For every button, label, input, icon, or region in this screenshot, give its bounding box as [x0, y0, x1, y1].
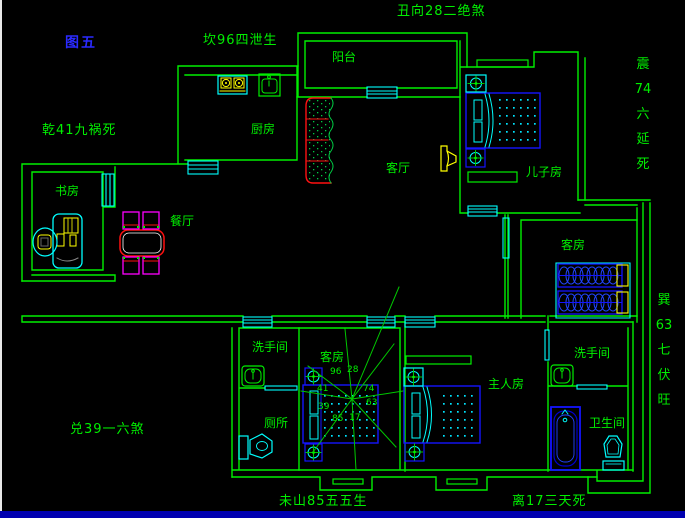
bathtub-icon — [551, 407, 580, 470]
compass-number-e: 74 — [363, 384, 374, 394]
window-study — [102, 174, 114, 206]
nightstand-target-icon — [466, 75, 486, 167]
bottom-scrollbar[interactable] — [0, 511, 685, 518]
window-hall-2 — [367, 317, 395, 327]
compass-number-se: 63 — [366, 398, 377, 408]
room-label-toilet: 厕所 — [264, 416, 288, 430]
threshold-right-washroom — [577, 385, 607, 389]
door-master — [545, 330, 549, 360]
annotation-li-south: 离17三天死 — [512, 495, 587, 509]
washbasin-icon — [551, 365, 573, 386]
room-label-guest-room-upper: 客房 — [561, 238, 585, 252]
window-sons-room — [468, 206, 497, 216]
room-label-washroom-right: 洗手间 — [574, 346, 610, 360]
compass-number-ne: 28 — [347, 365, 358, 375]
compass-number-s: 17 — [349, 413, 360, 423]
room-label-dining-room: 餐厅 — [170, 214, 194, 228]
toilet-icon — [239, 434, 272, 459]
room-label-guest-room-lower: 客房 — [320, 350, 344, 364]
room-label-washroom-left: 洗手间 — [252, 340, 288, 354]
toilet-icon — [603, 436, 624, 470]
sofa-icon — [306, 98, 333, 183]
room-label-master-room: 主人房 — [488, 377, 524, 391]
compass-number-n: 96 — [330, 367, 341, 377]
guest-beds-icon — [556, 263, 630, 318]
annotation-wei-southwest: 未山85五五生 — [279, 495, 368, 509]
annotation-zhen-east: 震 74 六 延 死 — [633, 52, 653, 177]
annotation-kan-north: 坎96四泄生 — [203, 34, 278, 48]
compass-number-w: 39 — [318, 402, 329, 412]
master-shelf-icon — [406, 356, 471, 364]
dining-table-icon — [120, 230, 164, 256]
room-label-living-room: 客厅 — [386, 161, 410, 175]
threshold-left-washroom — [265, 386, 297, 390]
annotation-xun-southeast: 巽 63 七 伏 旺 — [654, 288, 674, 413]
cad-floorplan-window: 图五 坎96四泄生 丑向28二绝煞 乾41九祸死 震 74 六 延 死 巽 63… — [0, 0, 685, 518]
sink-icon — [259, 74, 280, 96]
stove-icon — [218, 76, 247, 94]
annotation-chou-northeast: 丑向28二绝煞 — [397, 5, 486, 19]
tv-icon — [441, 146, 456, 171]
window-border-left — [0, 0, 2, 518]
room-label-kitchen: 厨房 — [251, 122, 275, 136]
entry-steps — [333, 479, 477, 484]
dining-chairs-icon — [123, 212, 159, 274]
compass-number-sw: 85 — [332, 414, 343, 424]
washbasin-icon — [242, 366, 264, 386]
window-balcony — [367, 87, 397, 98]
figure-label: 图五 — [65, 36, 97, 50]
room-label-balcony: 阳台 — [332, 50, 356, 64]
room-label-study: 书房 — [55, 184, 79, 198]
floorplan-canvas — [0, 0, 685, 518]
sons-bed-icon — [466, 93, 540, 148]
compass-number-nw: 41 — [317, 384, 328, 394]
window-hall-1 — [243, 317, 272, 327]
annotation-qian-northwest: 乾41九祸死 — [42, 124, 117, 138]
window-kitchen — [188, 161, 218, 174]
master-bed-icon — [404, 386, 480, 443]
room-label-bathroom: 卫生间 — [589, 416, 625, 430]
window-hall-3 — [405, 317, 435, 327]
annotation-dui-west: 兑39一六煞 — [70, 423, 145, 437]
room-label-sons-room: 儿子房 — [526, 165, 562, 179]
